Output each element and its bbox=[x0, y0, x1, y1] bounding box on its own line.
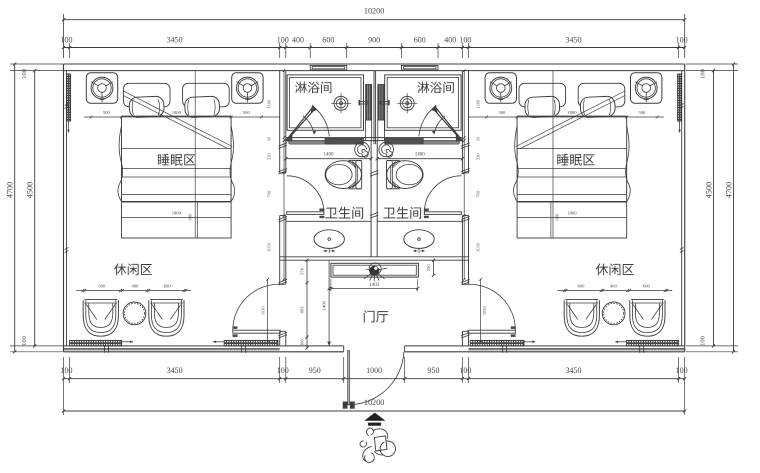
svg-text:600: 600 bbox=[164, 283, 172, 288]
svg-text:530: 530 bbox=[267, 153, 272, 160]
svg-text:1403: 1403 bbox=[369, 283, 380, 288]
svg-text:4500: 4500 bbox=[25, 182, 34, 198]
svg-text:500: 500 bbox=[498, 110, 506, 115]
svg-text:900: 900 bbox=[368, 35, 380, 44]
svg-text:400: 400 bbox=[292, 35, 304, 44]
svg-text:100: 100 bbox=[61, 366, 73, 375]
svg-text:100: 100 bbox=[277, 366, 289, 375]
svg-text:400: 400 bbox=[610, 283, 618, 288]
svg-text:500: 500 bbox=[103, 110, 111, 115]
svg-text:600: 600 bbox=[98, 283, 106, 288]
svg-text:100: 100 bbox=[61, 35, 73, 44]
svg-text:600: 600 bbox=[643, 283, 651, 288]
svg-text:500: 500 bbox=[243, 110, 251, 115]
svg-text:100: 100 bbox=[459, 35, 471, 44]
svg-text:1400: 1400 bbox=[322, 301, 327, 311]
svg-text:3450: 3450 bbox=[566, 35, 582, 44]
svg-text:1030: 1030 bbox=[260, 306, 265, 316]
svg-text:250: 250 bbox=[426, 264, 431, 272]
svg-text:700: 700 bbox=[267, 190, 272, 197]
svg-text:600: 600 bbox=[414, 35, 426, 44]
svg-text:3450: 3450 bbox=[566, 366, 582, 375]
svg-text:3450: 3450 bbox=[167, 35, 183, 44]
svg-text:100: 100 bbox=[676, 366, 688, 375]
svg-text:100: 100 bbox=[699, 336, 706, 346]
svg-text:4700: 4700 bbox=[724, 182, 733, 198]
svg-text:950: 950 bbox=[309, 366, 321, 375]
svg-text:100: 100 bbox=[277, 35, 289, 44]
svg-text:950: 950 bbox=[428, 366, 440, 375]
svg-text:700: 700 bbox=[476, 190, 481, 197]
svg-text:1800: 1800 bbox=[567, 210, 577, 215]
svg-text:100: 100 bbox=[21, 336, 28, 346]
svg-text:400: 400 bbox=[444, 35, 456, 44]
svg-text:1030: 1030 bbox=[482, 306, 487, 316]
svg-text:600: 600 bbox=[188, 213, 193, 221]
svg-text:893: 893 bbox=[300, 306, 305, 314]
svg-text:500: 500 bbox=[638, 110, 646, 115]
svg-text:4700: 4700 bbox=[5, 182, 14, 198]
svg-text:600: 600 bbox=[578, 283, 586, 288]
svg-text:180: 180 bbox=[300, 338, 305, 346]
svg-text:100: 100 bbox=[699, 69, 706, 79]
svg-text:600: 600 bbox=[555, 213, 560, 221]
svg-text:100: 100 bbox=[21, 69, 28, 79]
svg-text:1800: 1800 bbox=[172, 110, 182, 115]
svg-text:1100: 1100 bbox=[267, 99, 272, 108]
svg-text:1050: 1050 bbox=[476, 242, 481, 252]
svg-text:1400: 1400 bbox=[415, 153, 426, 158]
svg-text:370: 370 bbox=[300, 267, 305, 275]
svg-text:10200: 10200 bbox=[364, 6, 384, 15]
svg-text:100: 100 bbox=[459, 366, 471, 375]
svg-text:1050: 1050 bbox=[267, 242, 272, 252]
svg-text:400: 400 bbox=[131, 283, 139, 288]
svg-text:530: 530 bbox=[476, 153, 481, 160]
svg-text:600: 600 bbox=[322, 35, 334, 44]
svg-text:1800: 1800 bbox=[567, 110, 577, 115]
svg-text:1800: 1800 bbox=[172, 210, 182, 215]
svg-text:10200: 10200 bbox=[364, 398, 384, 407]
svg-text:3450: 3450 bbox=[167, 366, 183, 375]
svg-text:1000: 1000 bbox=[366, 366, 382, 375]
svg-text:100: 100 bbox=[676, 35, 688, 44]
svg-text:1400: 1400 bbox=[324, 153, 335, 158]
svg-text:1100: 1100 bbox=[476, 99, 481, 108]
svg-text:4500: 4500 bbox=[704, 182, 713, 198]
